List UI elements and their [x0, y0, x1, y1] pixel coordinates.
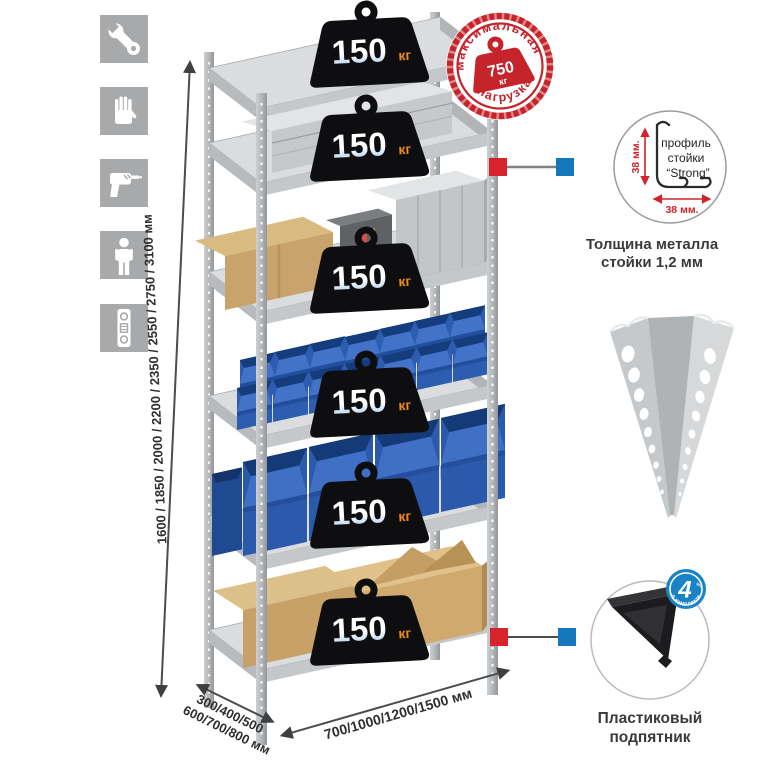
- post-profile-detail: 38 мм. 38 мм. профиль стойки “Strong” То…: [586, 111, 726, 271]
- kit-quantity-badge: 4 шт. в комплекте: [666, 569, 706, 609]
- shelf-load-value: 150: [331, 492, 388, 532]
- width-dimension-line: [282, 670, 509, 735]
- plastic-foot-detail: 4 шт. в комплекте Пластиковый подпятник: [591, 569, 709, 746]
- shelf-load-value: 150: [331, 381, 388, 421]
- shelf-load-value: 150: [331, 31, 388, 71]
- connector-red-square: [490, 628, 508, 646]
- weight-handle-icon: [358, 4, 375, 21]
- shelf-load-unit: кг: [398, 141, 412, 158]
- profile-label-line3: “Strong”: [666, 166, 709, 180]
- profile-dim-horizontal: 38 мм.: [665, 204, 698, 216]
- shelf-load-unit: кг: [398, 47, 412, 64]
- profile-caption-line2: стойки 1,2 мм: [601, 254, 703, 271]
- connector-red-square: [489, 158, 507, 176]
- metal-angle-profile: [610, 315, 734, 518]
- level-icon: [100, 304, 148, 352]
- shelving-infographic: 1600 / 1850 / 2000 / 2200 / 2350 / 2550 …: [0, 0, 765, 765]
- gloves-icon: [100, 87, 148, 135]
- weight-badge: 150 кг: [306, 1, 429, 88]
- profile-label-line2: стойки: [668, 151, 705, 165]
- shelf-load-value: 150: [331, 609, 388, 649]
- connector-blue-square: [556, 158, 574, 176]
- profile-caption-line1: Толщина металла: [586, 236, 719, 253]
- shelf-load-unit: кг: [398, 273, 412, 290]
- wrench-icon: [100, 15, 148, 63]
- shelf-load-unit: кг: [398, 397, 412, 414]
- profile-dim-vertical: 38 мм.: [630, 140, 642, 173]
- connector-blue-square: [558, 628, 576, 646]
- foot-caption-line1: Пластиковый: [598, 710, 703, 727]
- foot-caption-line2: подпятник: [609, 729, 690, 746]
- height-dimension: 1600 / 1850 / 2000 / 2200 / 2350 / 2550 …: [140, 62, 190, 696]
- width-dimension-label: 700/1000/1200/1500 мм: [322, 685, 474, 743]
- shelf-load-value: 150: [331, 257, 388, 297]
- connector-top: [489, 158, 574, 176]
- drill-icon: [100, 159, 148, 207]
- left-icon-column: [100, 15, 148, 352]
- shelf-load-unit: кг: [398, 508, 412, 525]
- infographic-canvas: 1600 / 1850 / 2000 / 2200 / 2350 / 2550 …: [0, 0, 765, 765]
- height-dimension-label: 1600 / 1850 / 2000 / 2200 / 2350 / 2550 …: [140, 214, 170, 544]
- shelf-load-value: 150: [331, 125, 388, 165]
- shelf-load-unit: кг: [398, 625, 412, 642]
- connector-bottom: [490, 628, 576, 646]
- height-dimension-line: [161, 62, 190, 696]
- width-dimension: 700/1000/1200/1500 мм: [282, 670, 514, 753]
- profile-label-line1: профиль: [661, 136, 711, 150]
